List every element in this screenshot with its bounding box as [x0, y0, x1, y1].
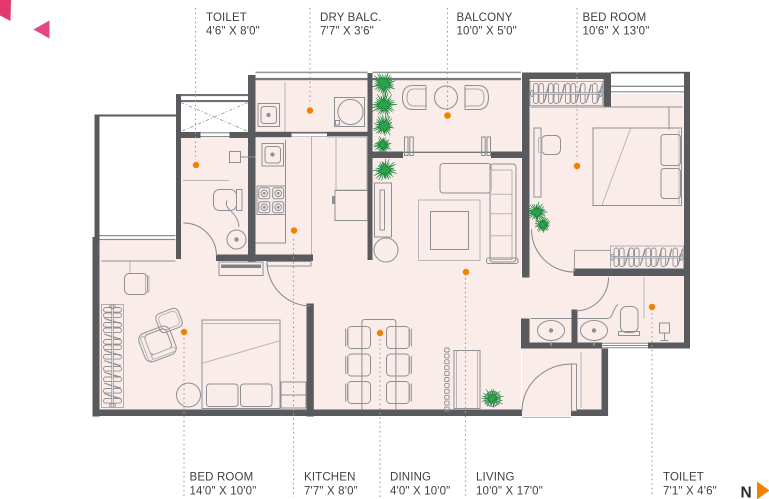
- svg-text:BED ROOM: BED ROOM: [190, 472, 254, 484]
- svg-text:14'0" X 10'0": 14'0" X 10'0": [190, 486, 257, 498]
- svg-text:LIVING: LIVING: [476, 472, 515, 484]
- svg-text:DRY BALC.: DRY BALC.: [320, 12, 382, 24]
- svg-text:4'6" X 8'0": 4'6" X 8'0": [206, 25, 260, 37]
- svg-text:7'7" X 3'6": 7'7" X 3'6": [320, 25, 374, 37]
- svg-text:DINING: DINING: [390, 472, 431, 484]
- svg-text:BALCONY: BALCONY: [457, 12, 513, 24]
- svg-text:BED ROOM: BED ROOM: [583, 12, 647, 24]
- svg-text:N: N: [741, 485, 752, 499]
- svg-text:10'6" X 13'0": 10'6" X 13'0": [583, 25, 650, 37]
- svg-text:10'0" X 17'0": 10'0" X 17'0": [476, 486, 543, 498]
- svg-text:KITCHEN: KITCHEN: [304, 472, 356, 484]
- svg-text:TOILET: TOILET: [663, 472, 704, 484]
- svg-text:4'0" X 10'0": 4'0" X 10'0": [390, 486, 450, 498]
- svg-text:7'1" X 4'6": 7'1" X 4'6": [663, 486, 717, 498]
- svg-text:7'7" X 8'0": 7'7" X 8'0": [304, 486, 358, 498]
- svg-text:10'0" X 5'0": 10'0" X 5'0": [457, 25, 517, 37]
- svg-text:TOILET: TOILET: [206, 12, 247, 24]
